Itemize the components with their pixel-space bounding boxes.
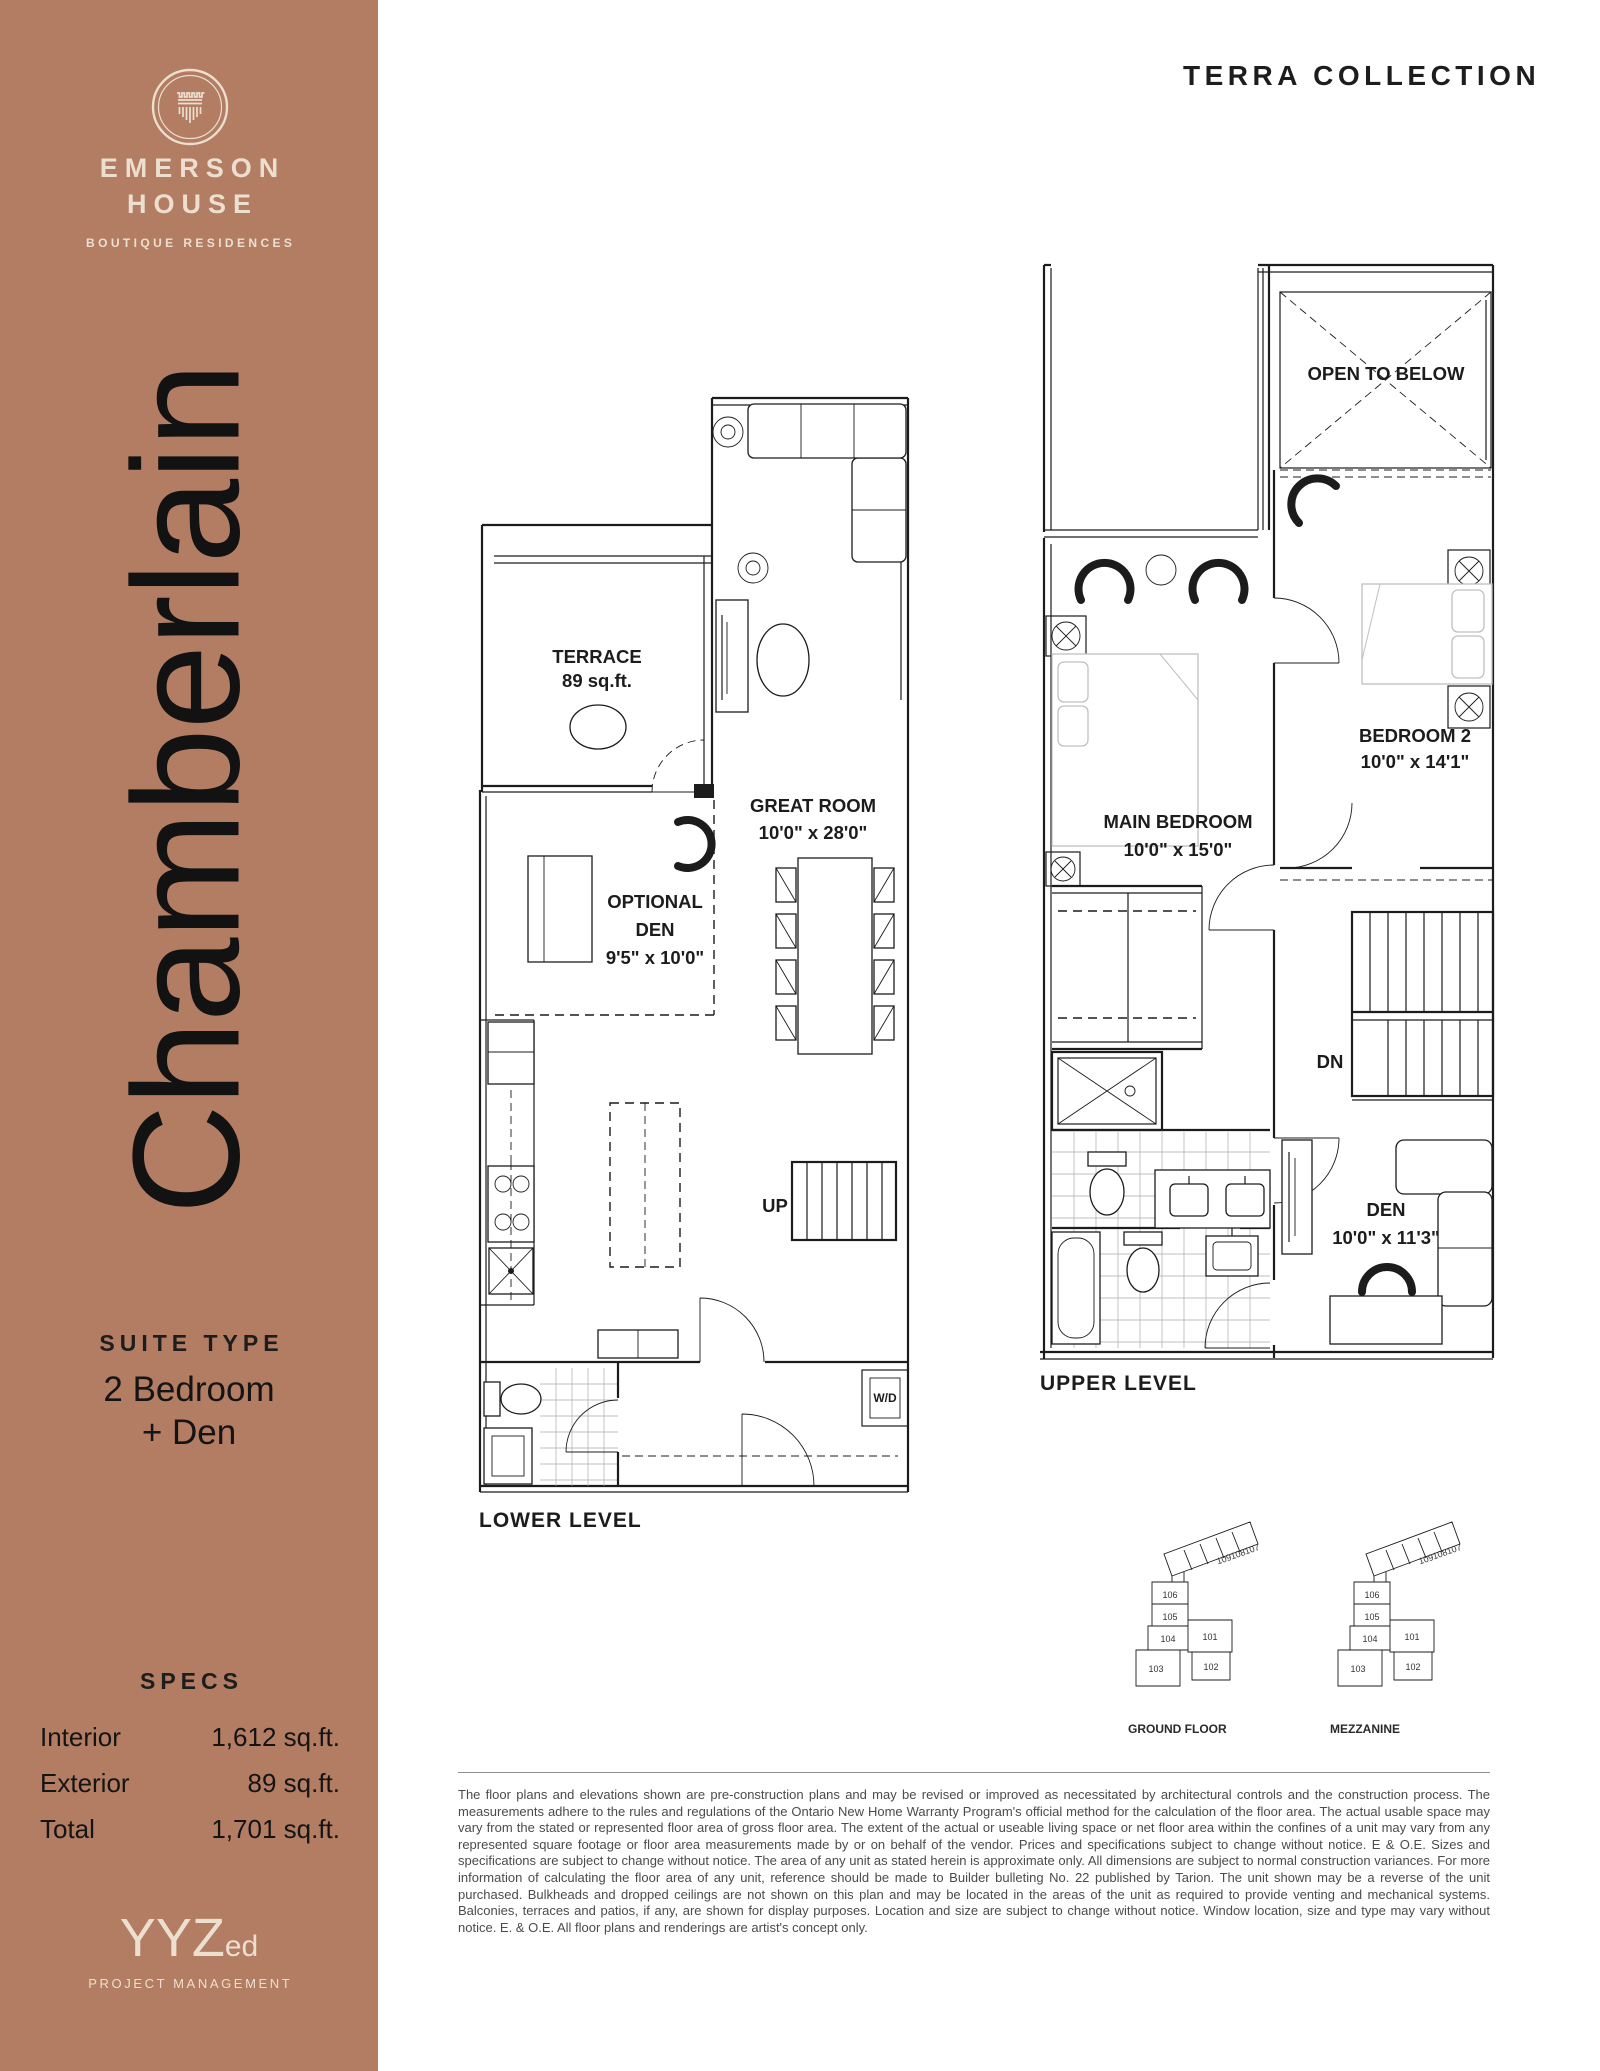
bedroom2-label: BEDROOM 2 — [1359, 725, 1471, 746]
unit-number: 106 — [1162, 1590, 1177, 1600]
disclaimer-text: The floor plans and elevations shown are… — [458, 1787, 1490, 1936]
optional-den-label2: DEN — [635, 919, 674, 940]
unit-number: 107 — [1445, 1542, 1462, 1556]
upper-level-title: UPPER LEVEL — [1040, 1372, 1197, 1395]
den-dim: 10'0" x 11'3" — [1332, 1227, 1440, 1248]
lower-level-title: LOWER LEVEL — [479, 1509, 642, 1532]
optional-den-dim: 9'5" x 10'0" — [606, 947, 704, 968]
unit-number: 107 — [1243, 1542, 1260, 1556]
great-room-dim: 10'0" x 28'0" — [759, 822, 868, 843]
terrace-label: TERRACE — [552, 646, 641, 667]
floor-plans: TERRACE 89 sq.ft. OPTIONAL DEN 9'5" x 10… — [0, 0, 1600, 2071]
open-to-below-label: OPEN TO BELOW — [1308, 363, 1465, 384]
washer-dryer-label: W/D — [873, 1391, 897, 1405]
bedroom2-dim: 10'0" x 14'1" — [1361, 751, 1470, 772]
unit-number: 105 — [1364, 1612, 1379, 1622]
keyplan-label-mezzanine: MEZZANINE — [1330, 1722, 1400, 1736]
floor-plan-lower: TERRACE 89 sq.ft. OPTIONAL DEN 9'5" x 10… — [479, 398, 908, 1532]
unit-number: 104 — [1362, 1634, 1377, 1644]
unit-number: 105 — [1162, 1612, 1177, 1622]
keyplan-mezzanine: 106 105 104 103 102 101 109 108 107 MEZZ… — [1330, 1522, 1463, 1736]
stairs-down-label: DN — [1317, 1051, 1344, 1072]
main-bedroom-label: MAIN BEDROOM — [1103, 811, 1252, 832]
unit-number: 103 — [1350, 1664, 1365, 1674]
terrace-dim: 89 sq.ft. — [562, 670, 632, 691]
floor-plan-upper: OPEN TO BELOW BEDROOM 2 10'0" x 14'1" — [1040, 265, 1493, 1395]
unit-number: 101 — [1404, 1632, 1419, 1642]
keyplan-label-ground: GROUND FLOOR — [1128, 1722, 1227, 1736]
main-bedroom-dim: 10'0" x 15'0" — [1124, 839, 1233, 860]
stairs-up-label: UP — [762, 1195, 788, 1216]
unit-number: 106 — [1364, 1590, 1379, 1600]
great-room-label: GREAT ROOM — [750, 795, 876, 816]
keyplan-ground-floor: 106 105 104 103 102 101 109 108 107 GROU… — [1128, 1522, 1261, 1736]
unit-number: 101 — [1202, 1632, 1217, 1642]
den-label: DEN — [1366, 1199, 1405, 1220]
footer-divider — [458, 1772, 1490, 1773]
unit-number: 103 — [1148, 1664, 1163, 1674]
optional-den-label1: OPTIONAL — [607, 891, 703, 912]
unit-number: 104 — [1160, 1634, 1175, 1644]
unit-number: 102 — [1203, 1662, 1218, 1672]
unit-number: 102 — [1405, 1662, 1420, 1672]
